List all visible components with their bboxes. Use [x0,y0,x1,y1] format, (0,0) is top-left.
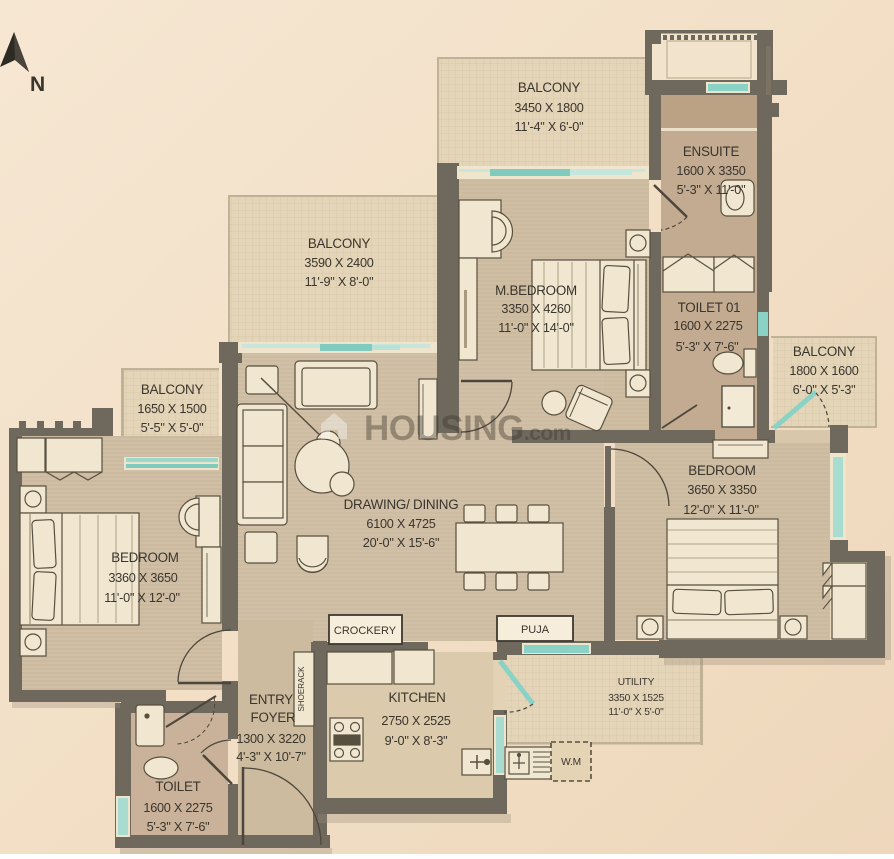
svg-text:11'-9" X 8'-0": 11'-9" X 8'-0" [305,275,374,289]
svg-text:2750 X 2525: 2750 X 2525 [381,714,450,728]
svg-text:CROCKERY: CROCKERY [334,625,397,637]
svg-text:N: N [30,73,45,96]
svg-text:1300 X 3220: 1300 X 3220 [236,732,305,746]
svg-text:3350 X 4260: 3350 X 4260 [501,302,570,316]
svg-text:BALCONY: BALCONY [518,80,581,95]
svg-text:SHOERACK: SHOERACK [297,666,306,712]
svg-text:PUJA: PUJA [521,624,550,636]
svg-text:1800 X 1600: 1800 X 1600 [789,364,858,378]
svg-text:1600 X 3350: 1600 X 3350 [676,164,745,178]
svg-text:1600 X 2275: 1600 X 2275 [143,801,212,815]
svg-text:TOILET: TOILET [155,779,200,794]
svg-text:BALCONY: BALCONY [308,236,371,251]
svg-text:BEDROOM: BEDROOM [111,550,179,565]
svg-text:11'-0" X 5'-0": 11'-0" X 5'-0" [608,707,664,718]
svg-text:6'-0" X 5'-3": 6'-0" X 5'-3" [793,383,856,397]
svg-text:4'-3" X 10'-7": 4'-3" X 10'-7" [236,750,306,764]
svg-text:3360 X 3650: 3360 X 3650 [108,571,177,585]
svg-text:5'-3" X 7'-6": 5'-3" X 7'-6" [676,340,739,354]
svg-text:DRAWING/ DINING: DRAWING/ DINING [344,497,459,512]
svg-text:9'-0" X 8'-3": 9'-0" X 8'-3" [385,734,448,748]
svg-text:3590 X 2400: 3590 X 2400 [304,256,373,270]
svg-text:1600 X 2275: 1600 X 2275 [673,319,742,333]
svg-text:ENSUITE: ENSUITE [683,144,740,159]
svg-text:BALCONY: BALCONY [793,344,856,359]
svg-text:3650 X 3350: 3650 X 3350 [687,483,756,497]
svg-text:20'-0" X 15'-6": 20'-0" X 15'-6" [363,536,439,550]
svg-text:BEDROOM: BEDROOM [688,463,756,478]
svg-text:KITCHEN: KITCHEN [388,690,445,705]
svg-text:3450 X 1800: 3450 X 1800 [514,101,583,115]
svg-text:3350 X 1525: 3350 X 1525 [608,693,664,704]
svg-text:11'-0" X 14'-0": 11'-0" X 14'-0" [498,321,573,335]
svg-text:TOILET 01: TOILET 01 [678,300,741,315]
svg-text:1650 X 1500: 1650 X 1500 [137,402,206,416]
svg-text:W.M: W.M [561,757,581,768]
svg-text:M.BEDROOM: M.BEDROOM [495,283,577,298]
svg-text:12'-0" X 11'-0": 12'-0" X 11'-0" [683,503,758,517]
svg-text:5'-5" X 5'-0": 5'-5" X 5'-0" [141,421,204,435]
svg-text:11'-4" X 6'-0": 11'-4" X 6'-0" [515,120,584,134]
svg-text:5'-3" X 11'-0": 5'-3" X 11'-0" [677,183,746,197]
svg-text:FOYER: FOYER [251,710,296,725]
svg-text:11'-0" X 12'-0": 11'-0" X 12'-0" [104,591,179,605]
svg-text:6100 X 4725: 6100 X 4725 [366,517,435,531]
svg-text:ENTRY: ENTRY [249,692,293,707]
svg-text:5'-3" X 7'-6": 5'-3" X 7'-6" [147,820,210,834]
svg-text:BALCONY: BALCONY [141,382,204,397]
svg-text:UTILITY: UTILITY [618,677,655,688]
